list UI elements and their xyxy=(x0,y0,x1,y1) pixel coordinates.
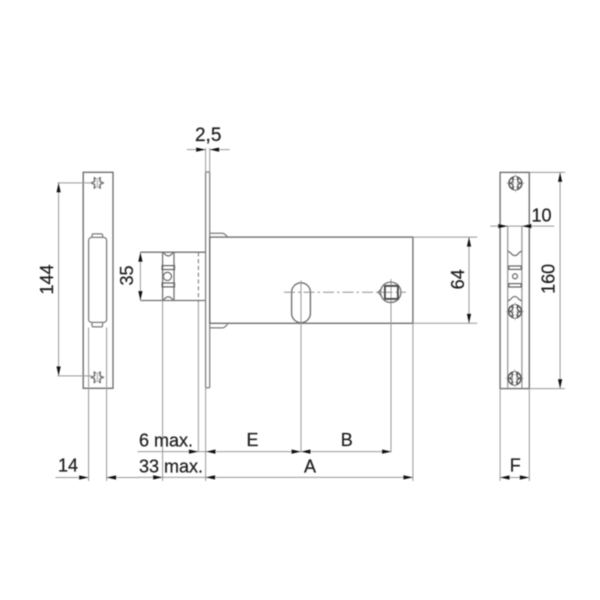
svg-text:64: 64 xyxy=(448,269,468,289)
svg-text:E: E xyxy=(246,430,258,450)
svg-text:33 max.: 33 max. xyxy=(139,457,203,477)
svg-text:14: 14 xyxy=(58,456,78,476)
svg-text:2,5: 2,5 xyxy=(195,125,221,146)
svg-text:A: A xyxy=(304,457,316,477)
svg-text:6 max.: 6 max. xyxy=(139,431,193,451)
svg-text:10: 10 xyxy=(531,206,551,226)
svg-text:F: F xyxy=(510,456,521,476)
svg-text:35: 35 xyxy=(117,265,137,285)
svg-text:160: 160 xyxy=(539,264,559,294)
svg-text:144: 144 xyxy=(37,264,57,294)
svg-text:B: B xyxy=(341,430,353,450)
